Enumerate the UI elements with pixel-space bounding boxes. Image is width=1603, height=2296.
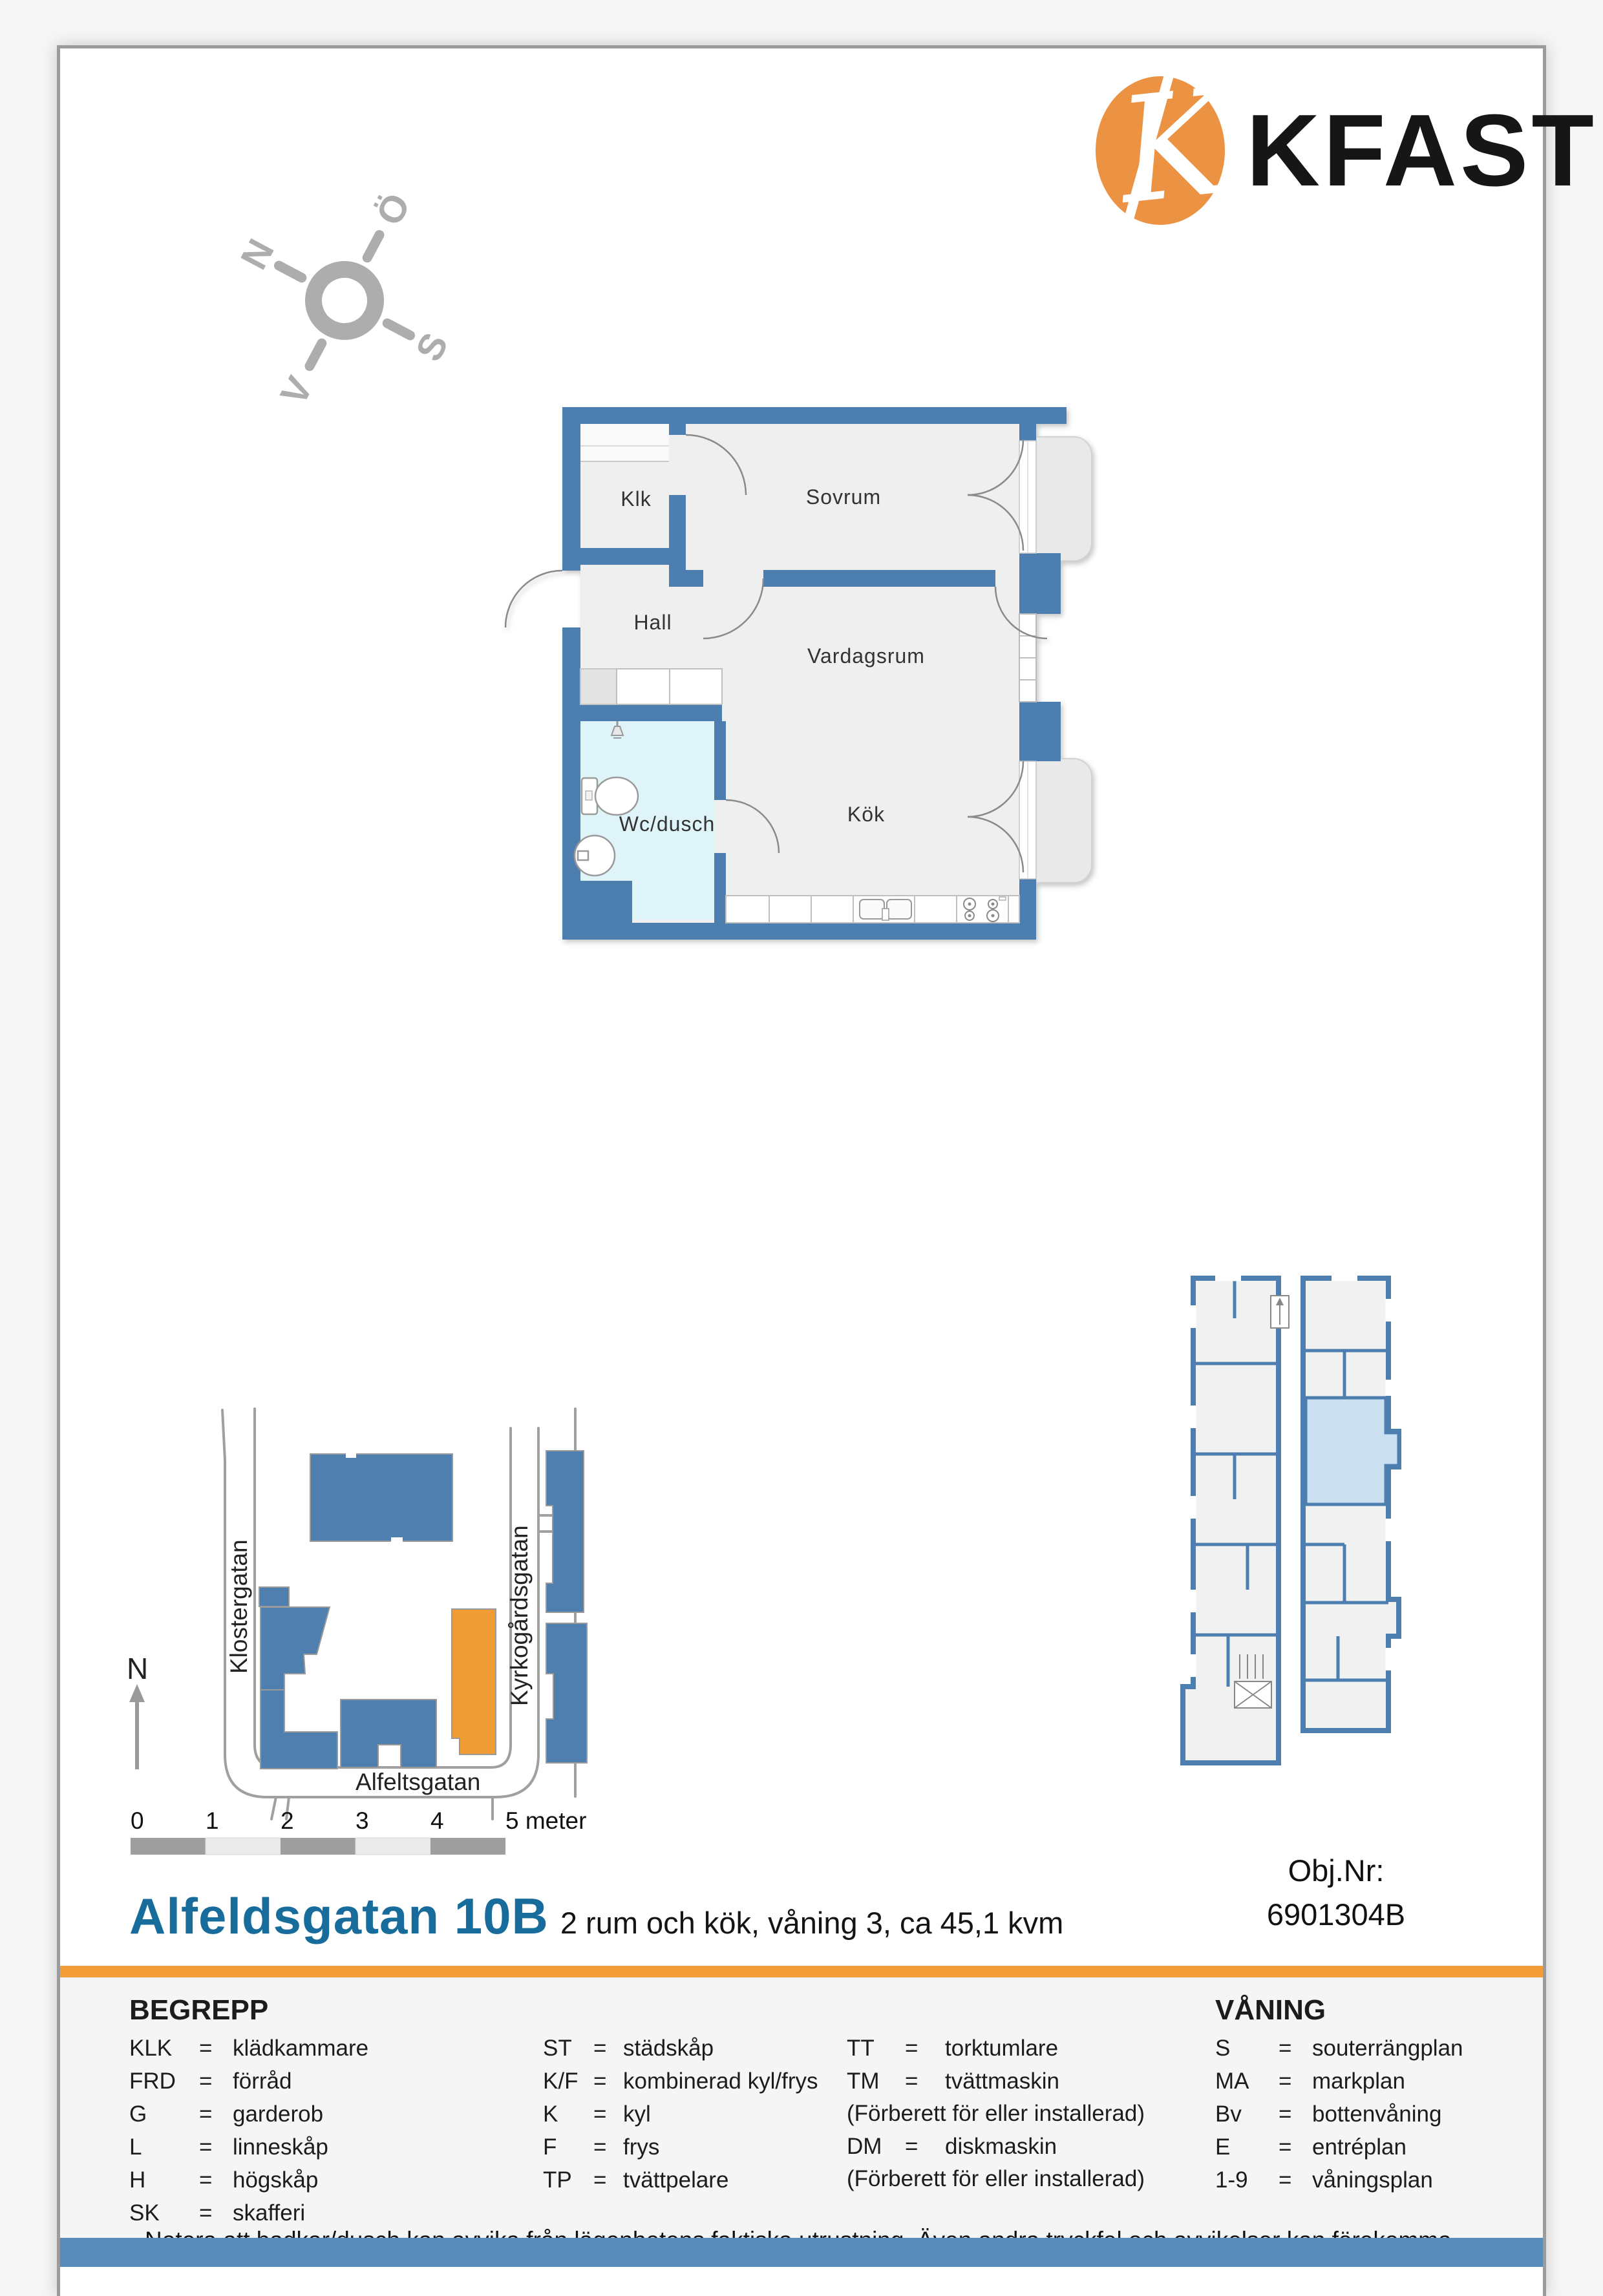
svg-text:0: 0 [131, 1807, 144, 1834]
svg-text:N: N [127, 1652, 148, 1685]
room-label-kok: Kök [847, 803, 885, 826]
street-label-kyrkogardsgatan: Kyrkogårdsgatan [506, 1525, 533, 1706]
kfast-logo-k: K [1108, 57, 1243, 238]
compass-north-label: N [233, 233, 282, 277]
legend-note-tm: (Förberett för eller installerad) [847, 2098, 1145, 2130]
apartment-floor-plan: Klk Sovrum Hall Vardagsrum Wc/dusch Kök [556, 399, 1099, 1078]
map-highlighted-building [452, 1609, 496, 1754]
room-label-hall: Hall [633, 611, 672, 634]
balcony-bottom [1036, 759, 1092, 883]
room-label-sovrum: Sovrum [806, 485, 881, 509]
vaning-heading: VÅNING [1215, 1994, 1326, 2027]
page-title: Alfeldsgatan 10B [129, 1887, 549, 1946]
svg-text:5 meter: 5 meter [505, 1807, 586, 1834]
toilet-icon [582, 777, 638, 815]
scale-bar: 0 1 2 3 4 5 meter [129, 1809, 582, 1861]
compass-east-label: Ö [368, 187, 419, 232]
north-arrow-icon: N [127, 1652, 148, 1769]
room-label-klk: Klk [621, 487, 651, 511]
washbasin-icon [575, 836, 615, 876]
legend-note-dm: (Förberett för eller installerad) [847, 2163, 1145, 2195]
object-number-value: 6901304B [1200, 1893, 1472, 1937]
footer-blue-bar [60, 2238, 1543, 2267]
svg-text:4: 4 [430, 1807, 444, 1834]
object-number-label: Obj.Nr: [1200, 1849, 1472, 1893]
street-label-alfeltsgatan: Alfeltsgatan [356, 1769, 480, 1795]
legend-column-2: ST=städskåp K/F=kombinerad kyl/frys K=ky… [543, 2032, 818, 2196]
page-subtitle: 2 rum och kök, våning 3, ca 45,1 kvm [560, 1905, 1063, 1941]
floorplan-document-page: K KFAST N Ö S V [57, 45, 1546, 2296]
highlighted-apartment [1306, 1398, 1399, 1504]
hall-wardrobes [580, 669, 722, 704]
orange-divider-bar [60, 1966, 1543, 1977]
building-overview-plan [1151, 1241, 1422, 1764]
object-number-block: Obj.Nr: 6901304B [1200, 1849, 1472, 1937]
compass-rose: N Ö S V [215, 174, 474, 420]
balcony-top [1036, 437, 1092, 561]
street-label-klostergatan: Klostergatan [226, 1539, 252, 1674]
room-label-wc: Wc/dusch [619, 812, 715, 836]
window-band [1019, 614, 1036, 702]
legend-footer: BEGREPP KLK=klädkammare FRD=förråd G=gar… [60, 1977, 1543, 2267]
legend-heading: BEGREPP [129, 1994, 268, 2027]
svg-text:1: 1 [206, 1807, 219, 1834]
stairs-icon [1271, 1296, 1289, 1328]
svg-text:2: 2 [281, 1807, 294, 1834]
legend-column-4: S=souterrängplan MA=markplan Bv=bottenvå… [1215, 2032, 1463, 2196]
kitchen-counter [726, 896, 1019, 923]
kfast-logo-text: KFAST [1246, 94, 1597, 207]
legend-column-3: TT=torktumlare TM=tvättmaskin (Förberett… [847, 2032, 1145, 2195]
svg-text:3: 3 [356, 1807, 369, 1834]
kfast-logo: K KFAST [1073, 55, 1487, 249]
room-label-vardagsrum: Vardagsrum [807, 644, 925, 668]
compass-south-label: S [408, 326, 457, 368]
site-map: Klostergatan Kyrkogårdsgatan Alfeltsgata… [97, 1370, 614, 1822]
title-row: Alfeldsgatan 10B 2 rum och kök, våning 3… [129, 1887, 1063, 1946]
legend-column-1: KLK=klädkammare FRD=förråd G=garderob L=… [129, 2032, 368, 2229]
compass-west-label: V [272, 370, 321, 412]
